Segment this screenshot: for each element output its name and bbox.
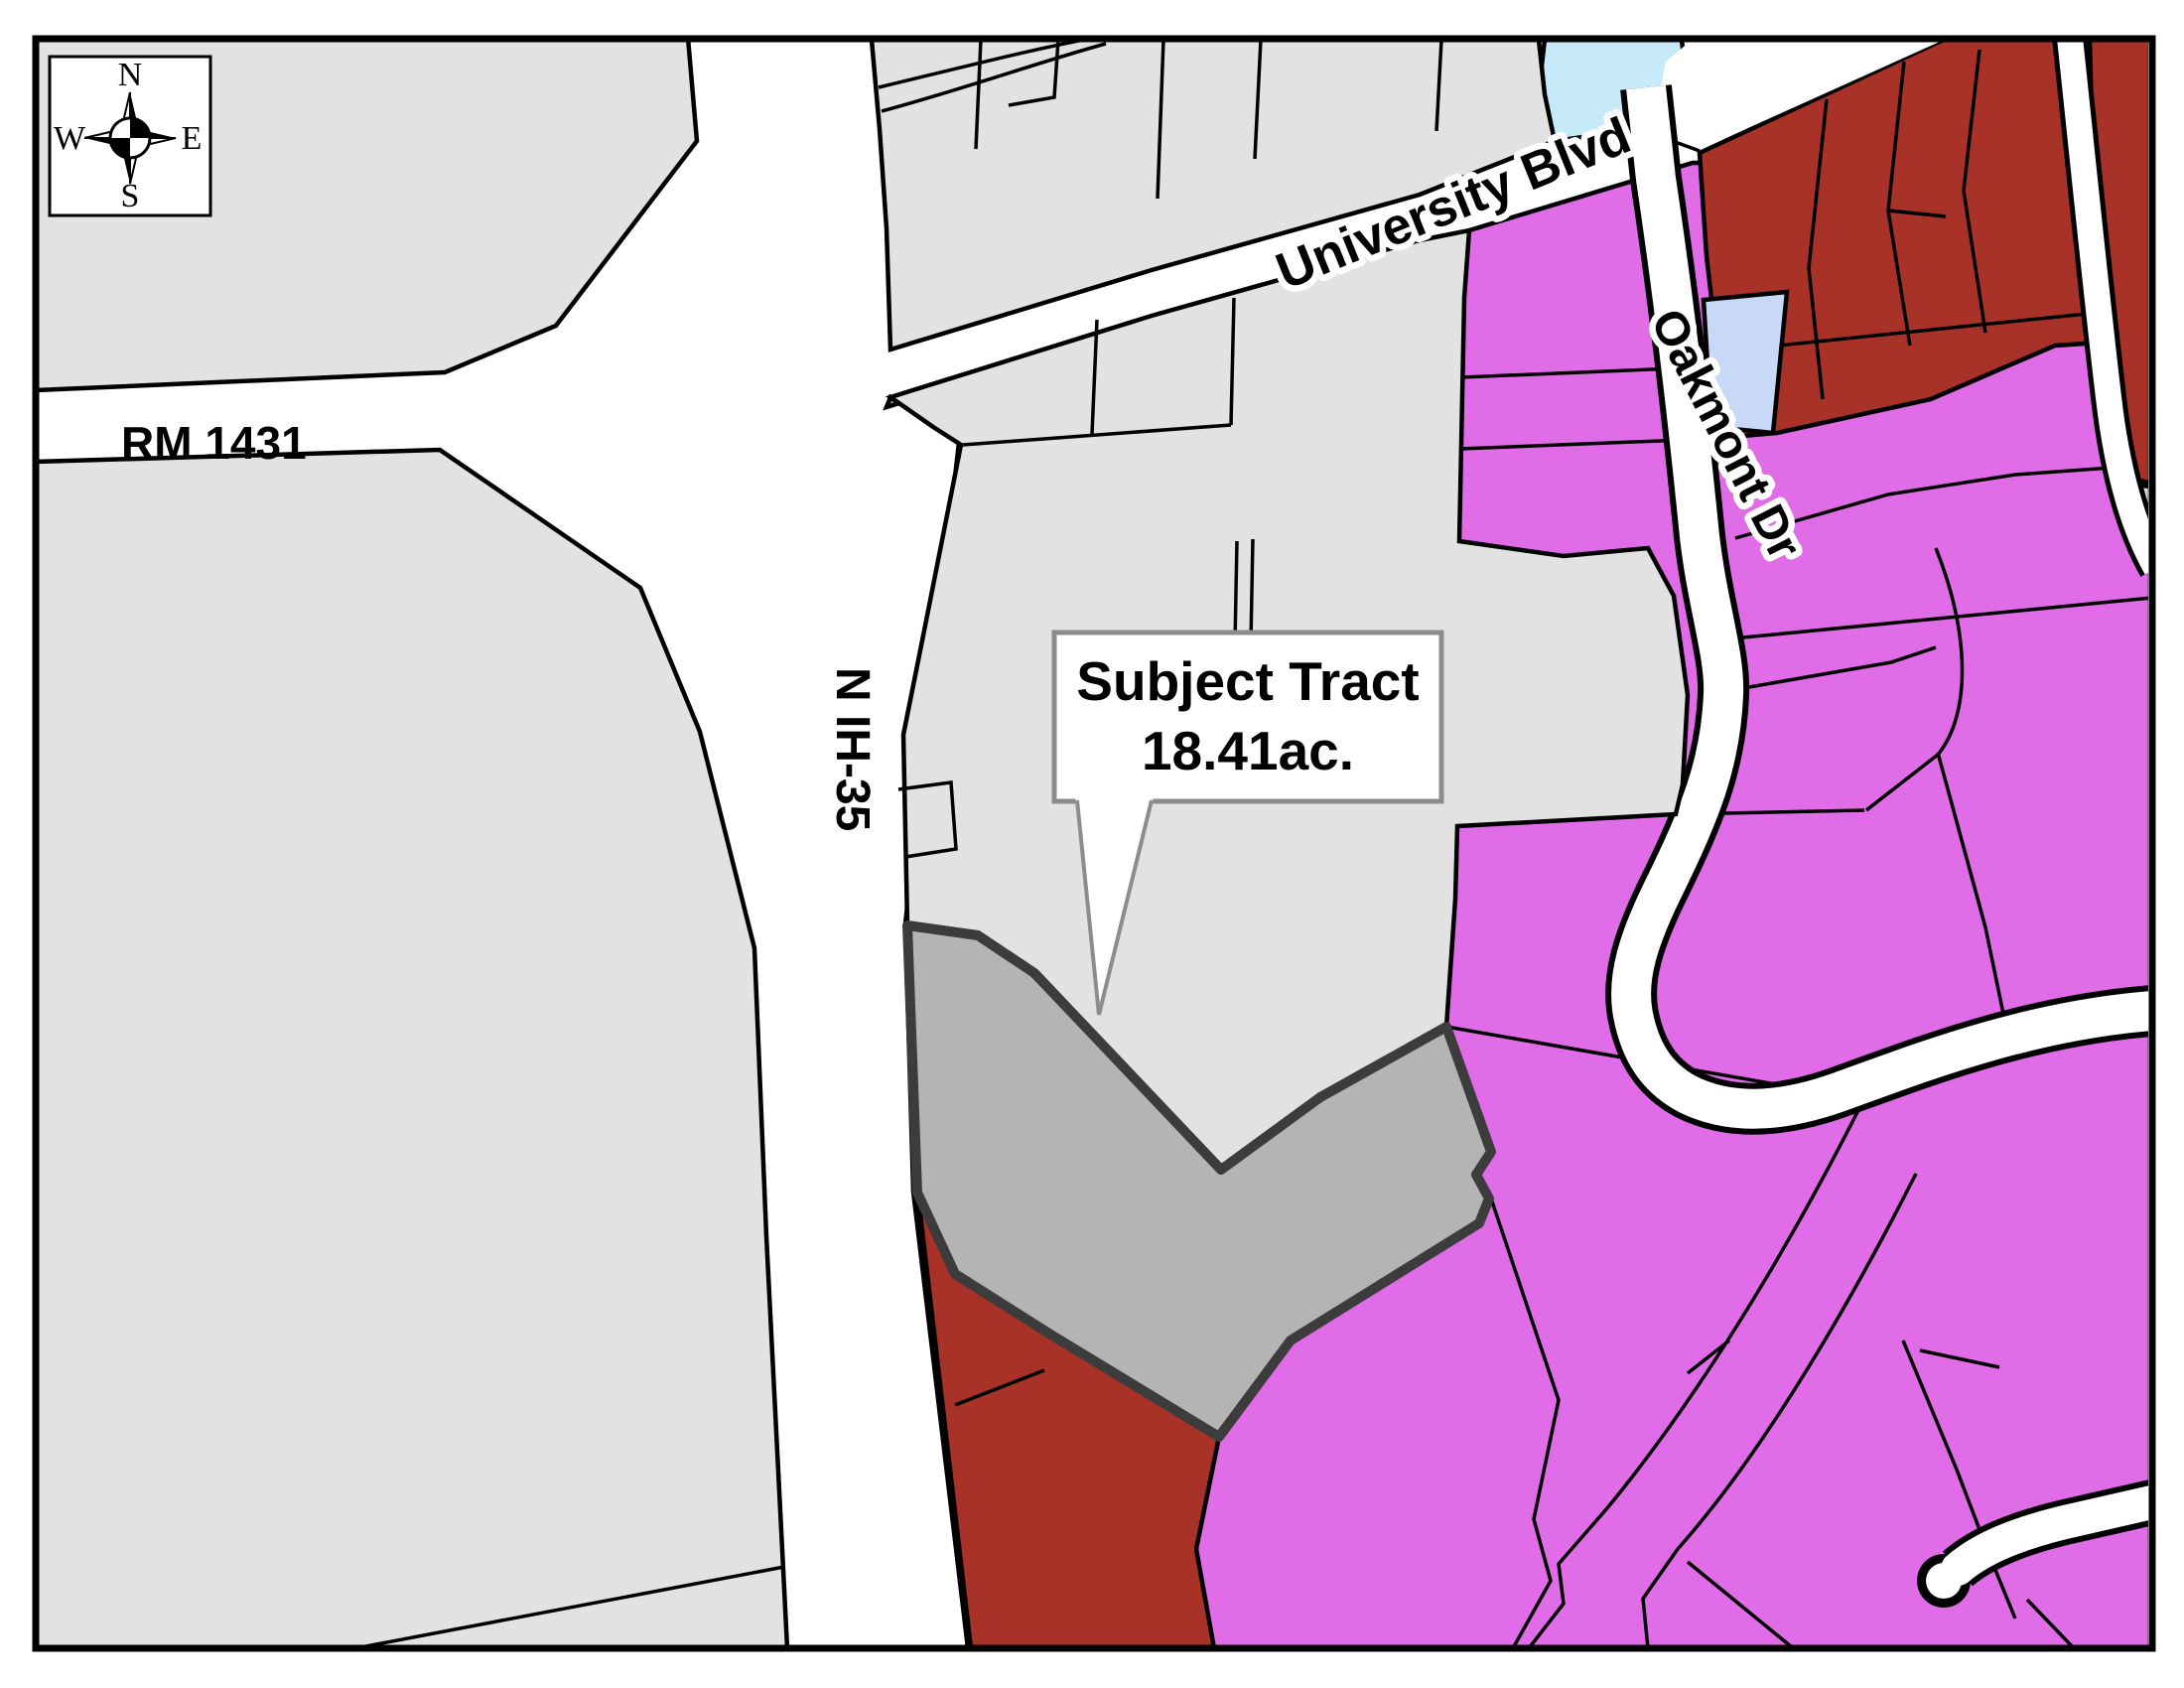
callout-acreage: 18.41ac. xyxy=(1142,720,1354,781)
map-content: RM 1431 N IH-35 University Blvd Oakmont … xyxy=(36,38,2156,1651)
compass-s: S xyxy=(121,178,140,214)
compass-rose: N S W E xyxy=(50,57,210,215)
compass-n: N xyxy=(118,57,143,93)
cul-de-sac-bulb xyxy=(1926,1563,1962,1599)
compass-w: W xyxy=(54,120,86,157)
label-rm-1431: RM 1431 xyxy=(121,417,307,469)
callout-title: Subject Tract xyxy=(1076,650,1419,712)
zoning-map: RM 1431 N IH-35 University Blvd Oakmont … xyxy=(0,0,2184,1688)
label-n-ih-35: N IH-35 xyxy=(826,667,879,831)
compass-e: E xyxy=(182,120,203,157)
